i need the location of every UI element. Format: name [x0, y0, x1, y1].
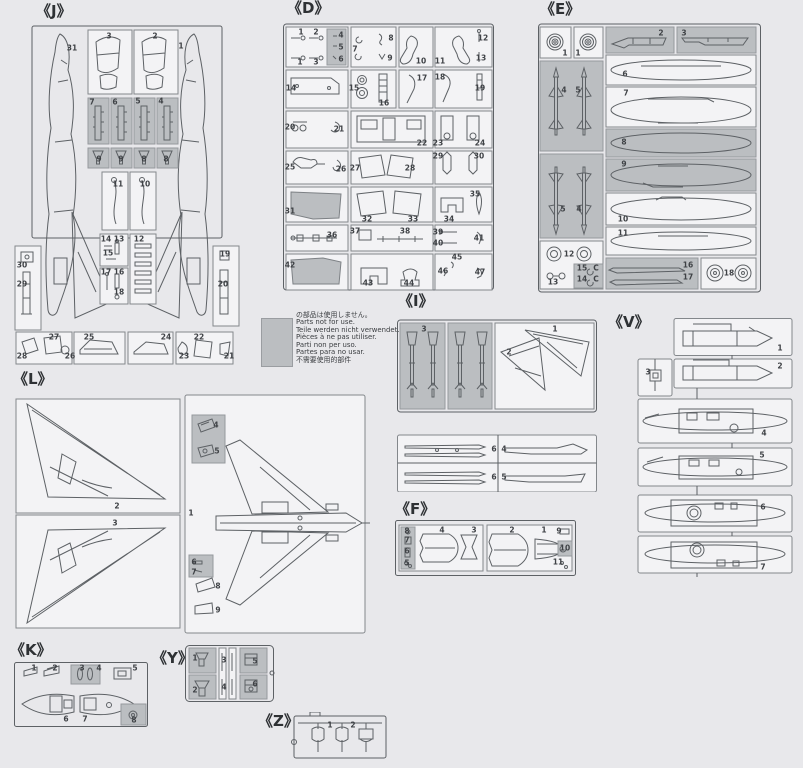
parts-map-page: 《J》 《D》 《E》 《I》 《V》 《L》 《F》 《K》 《Y》 《Z》 … — [0, 0, 803, 768]
sprue-I: 3126465 — [397, 316, 598, 492]
sprue-E-label: 《E》 — [540, 1, 580, 18]
sprue-L-art — [10, 392, 385, 640]
sprue-Y-art — [185, 645, 275, 703]
sprue-I-art — [397, 316, 598, 492]
sprue-J: 3132176549988111014131512171618302919202… — [14, 22, 240, 368]
sprue-L: 234516789 — [10, 392, 385, 640]
shaded-part-swatch — [261, 318, 293, 367]
sprue-E-art — [538, 22, 762, 294]
sprue-K-art — [14, 662, 149, 728]
sprue-E: 1123456785491011121315C14C161718 — [538, 22, 762, 294]
sprue-D-art — [283, 22, 495, 292]
note-line: 不需要使用的部件 — [296, 357, 406, 364]
sprue-Z: 12 — [290, 712, 390, 762]
sprue-F-label: 《F》 — [395, 501, 435, 518]
sprue-J-label: 《J》 — [36, 3, 72, 20]
sprue-Z-art — [290, 712, 390, 762]
not-for-use-note: の部品は使用しません。 Parts not for use. Teile wer… — [296, 312, 406, 364]
sprue-D-label: 《D》 — [287, 0, 329, 17]
sprue-J-art — [14, 22, 240, 368]
sprue-F: 8765432191011 — [395, 520, 577, 577]
sprue-K-label: 《K》 — [10, 642, 52, 659]
sprue-L-label: 《L》 — [13, 371, 53, 388]
sprue-K: 12345678 — [14, 662, 149, 728]
sprue-Y: 123456 — [185, 645, 275, 703]
sprue-F-art — [395, 520, 577, 577]
sprue-V: 1234567 — [637, 318, 793, 578]
sprue-D: 1213456789101112131415161718192021222324… — [283, 22, 495, 292]
sprue-V-art — [637, 318, 793, 578]
sprue-I-label: 《I》 — [398, 293, 434, 310]
